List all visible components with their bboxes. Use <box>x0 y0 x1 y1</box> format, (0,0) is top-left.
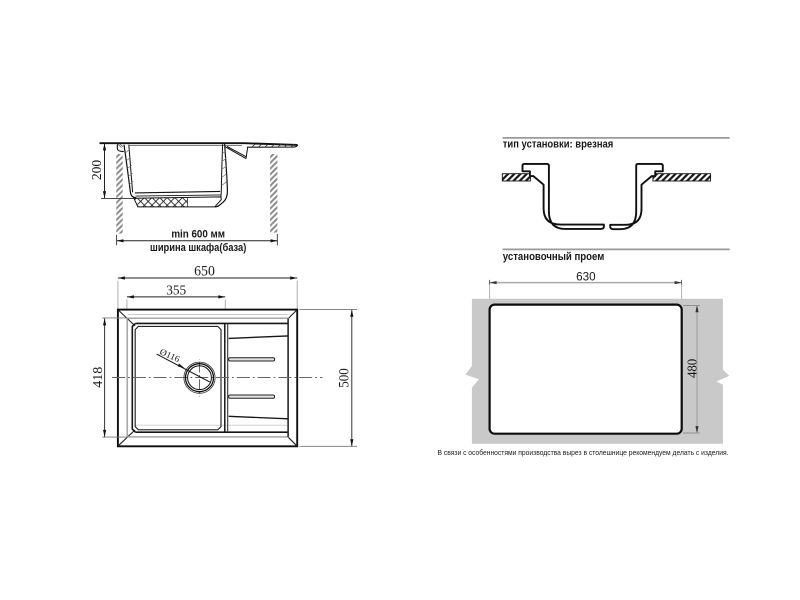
svg-text:500: 500 <box>337 368 353 388</box>
svg-text:650: 650 <box>194 263 215 280</box>
svg-text:В связи с особенностями произв: В связи с особенностями производства выр… <box>438 448 729 457</box>
svg-text:200: 200 <box>89 160 104 180</box>
svg-text:тип установки: врезная: тип установки: врезная <box>503 138 614 150</box>
svg-text:min 600 мм: min 600 мм <box>171 228 225 240</box>
svg-text:355: 355 <box>166 282 186 297</box>
svg-text:418: 418 <box>91 367 106 388</box>
svg-text:630: 630 <box>576 269 596 283</box>
svg-text:ширина шкафа(база): ширина шкафа(база) <box>150 242 246 254</box>
svg-text:480: 480 <box>686 359 701 378</box>
svg-text:установочный проем: установочный проем <box>503 251 605 263</box>
